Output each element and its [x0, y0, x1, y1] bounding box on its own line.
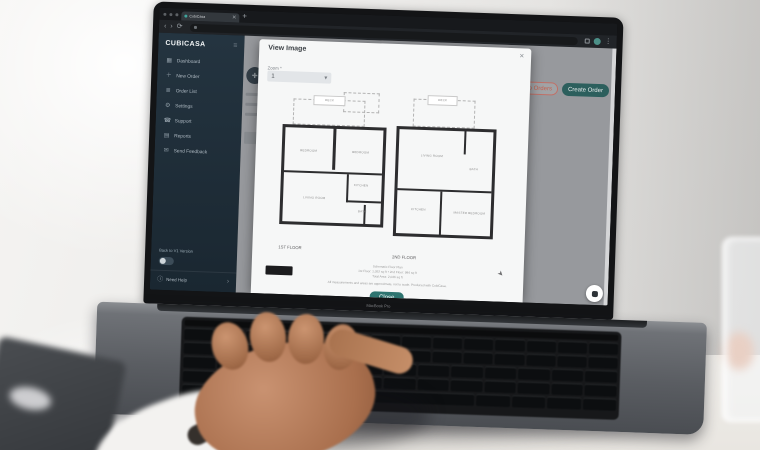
keyboard-key — [215, 343, 245, 356]
floor-plan-2: DECK LIVING ROOM KITCHEN MASTER BEDROOM … — [392, 92, 498, 265]
plan-footer-text: Schematic Floor Plan 1st Floor: 1,052 sq… — [320, 262, 456, 289]
feedback-icon: ✉ — [163, 147, 170, 153]
keyboard-key — [512, 395, 546, 408]
browser-menu-icon[interactable]: ⋮ — [605, 38, 612, 45]
sidebar-item-label: Settings — [175, 103, 193, 109]
reports-icon: ▤ — [163, 132, 170, 138]
keyboard-key — [246, 330, 276, 343]
keyboard-key — [339, 347, 369, 360]
keyboard-key — [464, 338, 494, 351]
dashboard-icon: ▦ — [166, 57, 173, 63]
sidebar-item-label: Send Feedback — [174, 148, 208, 155]
keyboard-key — [184, 342, 214, 355]
extensions-icon[interactable] — [585, 39, 590, 44]
keyboard-key — [557, 355, 587, 368]
keyboard-key — [217, 357, 249, 370]
keyboard-key — [277, 331, 307, 344]
support-icon: ☎ — [164, 117, 171, 123]
keyboard-key — [371, 334, 401, 347]
keyboard-key — [215, 329, 245, 342]
keyboard-key — [451, 379, 483, 392]
keyboard-key — [526, 354, 556, 367]
new-tab-icon[interactable]: + — [242, 13, 247, 21]
cubicasa-logo: CUBICASA — [165, 40, 229, 49]
keyboard-key — [464, 352, 494, 365]
help-icon: ⓘ — [157, 276, 163, 282]
lock-icon — [193, 26, 196, 29]
profile-avatar[interactable] — [594, 38, 601, 45]
keyboard-key — [402, 335, 432, 348]
laptop-screen: CubiCasa × + ‹ › ⟳ ⋮ — [143, 1, 623, 319]
keyboard-key — [246, 344, 276, 357]
need-help-label: Need Help — [166, 277, 198, 283]
macbook-laptop: CubiCasa × + ‹ › ⟳ ⋮ — [87, 0, 724, 445]
floor-label: 1ST FLOOR — [278, 245, 301, 250]
view-image-modal: View Image × Zoom * 1 ▾ — [251, 39, 532, 302]
keyboard-key — [582, 398, 616, 411]
favicon-icon — [184, 15, 187, 18]
keyboard-key — [308, 346, 338, 359]
sidebar-item-send-feedback[interactable]: ✉ Send Feedback — [154, 143, 240, 161]
room-label: BATH — [358, 210, 367, 213]
keyboard-key — [350, 376, 382, 389]
modal-close-icon[interactable]: × — [519, 51, 524, 60]
sidebar-item-label: Order List — [176, 88, 197, 94]
keyboard-key — [585, 384, 617, 397]
keyboard-key — [384, 363, 416, 376]
keyboard-key — [288, 387, 322, 400]
keyboard-key — [253, 386, 287, 399]
plan-outline — [393, 126, 497, 239]
keyboard-key — [317, 360, 349, 373]
deck-label-box: DECK — [427, 95, 457, 106]
keyboard-key — [433, 350, 463, 363]
keyboard-key — [495, 339, 525, 352]
deck-outline — [343, 92, 380, 113]
chevron-right-icon: › — [227, 278, 230, 285]
sidebar-item-label: Support — [175, 118, 192, 124]
screen-content: CubiCasa × + ‹ › ⟳ ⋮ — [150, 8, 618, 306]
keyboard-key — [216, 371, 248, 384]
sidebar-item-label: Reports — [174, 133, 191, 139]
keyboard-key — [451, 365, 483, 378]
version-toggle-switch[interactable] — [159, 257, 174, 266]
deck-label-box: DECK — [313, 95, 345, 106]
modal-close-button[interactable]: Close — [369, 291, 403, 303]
keyboard-key — [518, 381, 550, 394]
keyboard-key — [495, 353, 525, 366]
keyboard-key — [324, 389, 475, 406]
brokerage-logo — [265, 266, 292, 276]
keyboard-key — [351, 362, 383, 375]
keyboard-key — [250, 358, 282, 371]
keyboard-key — [384, 377, 416, 390]
room-label: BEDROOM — [300, 149, 317, 153]
modal-title: View Image — [268, 44, 306, 52]
keyboard-key — [485, 366, 517, 379]
room-label: BEDROOM — [352, 151, 369, 155]
north-arrow-icon: ➤ — [496, 269, 506, 279]
keyboard-key — [184, 328, 214, 341]
zoom-dropdown[interactable]: 1 ▾ — [267, 70, 331, 83]
keyboard-key — [547, 396, 581, 409]
keyboard-key — [218, 385, 252, 398]
keyboard-key — [309, 332, 339, 345]
keyboard-key — [340, 333, 370, 346]
room-label: KITCHEN — [411, 208, 426, 212]
room-label: DECK — [438, 99, 447, 102]
sidebar: CUBICASA ≡ ▦ Dashboard ＋ New Order ≣ — [150, 33, 245, 293]
chevron-down-icon: ▾ — [324, 74, 327, 81]
chat-icon — [591, 290, 597, 296]
keyboard-key — [418, 364, 450, 377]
keyboard-key — [588, 356, 618, 369]
keyboard-key — [518, 367, 550, 380]
laptop-deck — [93, 302, 707, 435]
keyboard-key — [277, 345, 307, 358]
keyboard-key — [317, 374, 349, 387]
room-label: BATH — [469, 168, 478, 171]
room-label: KITCHEN — [354, 184, 369, 188]
traffic-light-icon[interactable] — [169, 13, 172, 16]
keyboard-key — [526, 340, 556, 353]
keyboard-key — [551, 383, 583, 396]
sidebar-item-label: New Order — [176, 73, 199, 79]
keyboard-key — [476, 394, 510, 407]
close-tab-icon[interactable]: × — [232, 14, 236, 21]
sidebar-item-label: Dashboard — [177, 58, 201, 64]
keyboard-key — [283, 373, 315, 386]
blurred-logo-highlight — [7, 383, 53, 413]
keyboard-key — [484, 380, 516, 393]
keyboard-key — [182, 384, 216, 397]
new-order-icon: ＋ — [165, 72, 172, 78]
keyboard-key — [585, 370, 617, 383]
keyboard-key — [417, 378, 449, 391]
glass-body — [722, 237, 760, 422]
version-toggle-label: Back to V1 Version — [159, 248, 194, 254]
sidebar-bottom: Back to V1 Version ⓘ Need Help › — [150, 240, 238, 289]
keyboard-key — [370, 348, 400, 361]
keyboard-key — [250, 372, 282, 385]
zoom-dropdown-value: 1 — [271, 73, 324, 81]
traffic-light-icon[interactable] — [175, 13, 178, 16]
need-help-link[interactable]: ⓘ Need Help › — [150, 270, 237, 289]
keyboard-key — [558, 341, 588, 354]
room-label: DECK — [325, 99, 334, 102]
settings-icon: ⚙ — [164, 102, 171, 108]
keyboard-key — [433, 336, 463, 349]
keyboard-key — [589, 342, 619, 355]
create-order-button[interactable]: Create Order — [562, 83, 609, 98]
floor-label: 2ND FLOOR — [392, 255, 416, 260]
keyboard-keys — [182, 328, 618, 411]
keyboard-key — [183, 356, 215, 369]
version-toggle-wrap: Back to V1 Version — [150, 244, 237, 273]
traffic-light-icon[interactable] — [163, 13, 166, 16]
reload-icon[interactable]: ⟳ — [177, 23, 183, 30]
keyboard-key — [183, 370, 215, 383]
floor-plan-1: DECK BEDROOM BEDROOM LIVING ROOM — [278, 94, 387, 256]
toggle-knob — [160, 258, 166, 264]
tab-title: CubiCasa — [189, 14, 208, 19]
forward-icon[interactable]: › — [170, 23, 173, 30]
back-icon[interactable]: ‹ — [164, 23, 167, 30]
order-list-icon: ≣ — [165, 87, 172, 93]
cubicasa-app: CUBICASA ≡ ▦ Dashboard ＋ New Order ≣ — [150, 33, 617, 306]
drinking-glass — [722, 237, 760, 422]
keyboard-key — [401, 349, 431, 362]
keyboard-key — [552, 369, 584, 382]
order-page: ✚ Go To Orders Create Order View Image — [236, 36, 617, 306]
photo-scene: CubiCasa × + ‹ › ⟳ ⋮ — [0, 0, 760, 450]
sidebar-collapse-icon[interactable]: ≡ — [233, 42, 237, 49]
keyboard-key — [284, 359, 316, 372]
keyboard — [179, 317, 622, 420]
